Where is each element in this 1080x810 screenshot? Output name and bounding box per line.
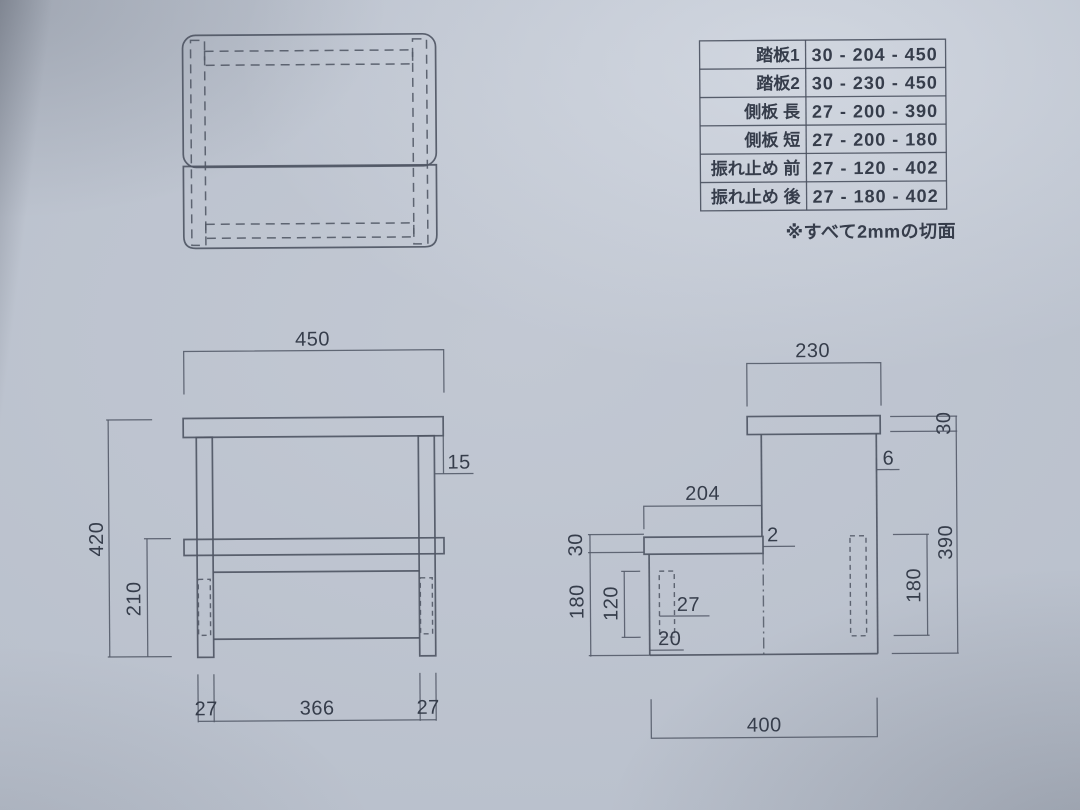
top-view-rear-brace-hidden [205,50,413,65]
side-lower-front-edge [649,554,650,655]
side-top-board [747,416,880,435]
part-name: 側板 短 [743,130,800,150]
side-step-board [644,536,763,554]
dim-label-27-left: 27 [194,698,217,720]
dim-label-30-left: 30 [565,533,587,556]
part-dims: 30 - 230 - 450 [812,73,938,94]
dim-label-450: 450 [295,328,330,350]
part-dims: 27 - 200 - 390 [812,101,938,122]
front-top-board [183,417,443,438]
dim-label-2: 2 [767,524,779,546]
top-view-front-brace-hidden [206,223,414,238]
part-dims: 27 - 120 - 402 [812,158,938,179]
part-name: 側板 長 [743,101,801,121]
top-view-drawing [182,34,436,249]
part-name: 踏板1 [756,45,800,65]
dim-label-366: 366 [300,697,335,719]
part-name: 振れ止め 前 [711,158,801,179]
table-row: 側板 長 27 - 200 - 390 [743,100,938,122]
part-dims: 30 - 204 - 450 [812,44,938,65]
dim-label-390: 390 [935,525,957,560]
chamfer-note: ※すべて2mmの切面 [785,221,956,242]
dim-label-27-right: 27 [416,697,439,719]
dim-label-180-left: 180 [566,584,588,619]
front-brace-top-edge [213,571,419,572]
table-column-divider [805,40,806,210]
part-dims: 27 - 200 - 180 [812,129,938,150]
front-left-hidden-joint [198,579,210,635]
dim-label-180-right: 180 [903,568,925,603]
dim-label-400: 400 [747,714,782,736]
table-row: 振れ止め 後 27 - 180 - 402 [711,185,939,207]
dim-label-120: 120 [600,586,622,621]
dim-label-15: 15 [447,451,470,473]
front-brace-bottom-edge [214,638,420,639]
side-view-drawing [643,416,882,656]
top-view-upper-board-outline [182,34,436,168]
side-view-dimensions: 230 30 6 390 180 204 2 30 180 120 27 20 [564,339,960,739]
top-view-left-panel-hidden [190,40,205,245]
drawing-canvas: 踏板1 30 - 204 - 450 踏板2 30 - 230 - 450 側板… [0,0,1080,810]
dim-label-420: 420 [86,522,108,557]
part-dims: 27 - 180 - 402 [813,186,939,207]
front-view-drawing [183,417,445,658]
parts-table: 踏板1 30 - 204 - 450 踏板2 30 - 230 - 450 側板… [699,39,956,243]
part-name: 振れ止め 後 [711,186,802,207]
top-view-right-panel-hidden [412,39,427,244]
side-panel-joint-line [763,553,764,654]
dim-label-6: 6 [883,448,895,470]
table-row: 踏板1 30 - 204 - 450 [756,44,938,66]
side-rear-brace-hidden [850,536,867,636]
table-row: 側板 短 27 - 200 - 180 [743,129,938,151]
table-row: 振れ止め 前 27 - 120 - 402 [711,157,939,179]
front-right-hidden-joint [420,578,432,634]
dim-label-27-brace: 27 [677,594,700,616]
front-view-dimensions: 450 420 210 15 27 366 27 [85,327,476,723]
part-name: 踏板2 [756,73,800,93]
dim-label-20: 20 [658,628,681,650]
dim-label-210: 210 [123,581,145,616]
dim-label-30-top: 30 [933,411,955,434]
photographed-technical-drawing: 踏板1 30 - 204 - 450 踏板2 30 - 230 - 450 側板… [0,0,1080,810]
front-step-board [184,538,444,556]
table-row: 踏板2 30 - 230 - 450 [756,72,938,94]
dim-label-230: 230 [795,340,830,362]
dim-label-204: 204 [685,483,720,505]
top-view-lower-board-outline [183,165,437,249]
